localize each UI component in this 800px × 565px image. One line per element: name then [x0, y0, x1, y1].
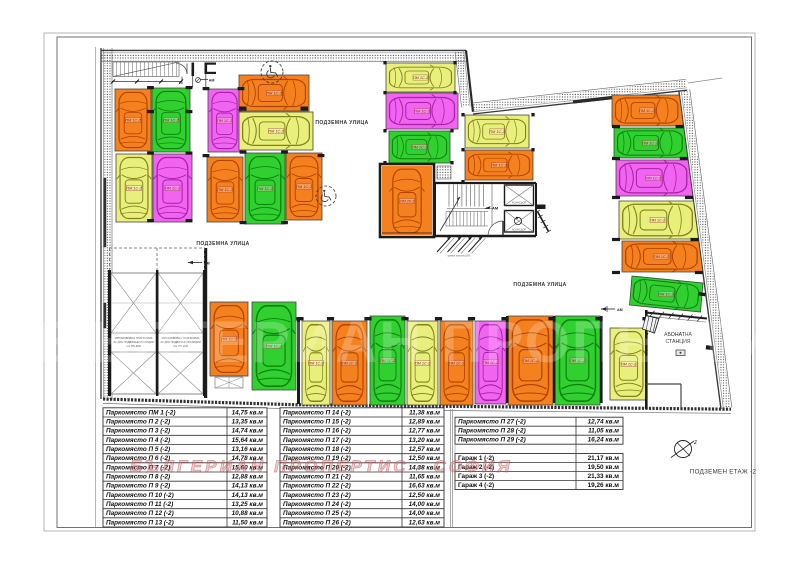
svg-text:ПМ 1C-2: ПМ 1C-2: [165, 187, 181, 191]
svg-text:ПОДЗЕМНА УЛИЦА: ПОДЗЕМНА УЛИЦА: [315, 120, 368, 126]
svg-text:12,50 кв.м: 12,50 кв.м: [409, 492, 441, 499]
svg-text:21,33 кв.м: 21,33 кв.м: [588, 473, 620, 480]
svg-text:Паркомясто П 5 (-2): Паркомясто П 5 (-2): [106, 446, 170, 453]
svg-text:Паркомясто П 25 (-2): Паркомясто П 25 (-2): [283, 510, 351, 517]
svg-text:Паркомясто П 2 (-2): Паркомясто П 2 (-2): [106, 419, 170, 426]
svg-text:Паркомясто П 12 (-2): Паркомясто П 12 (-2): [106, 510, 174, 517]
svg-text:14,13 кв.м: 14,13 кв.м: [232, 492, 264, 499]
svg-text:АСАНСЬОР: АСАНСЬОР: [512, 201, 527, 205]
svg-text:13,25 кв.м: 13,25 кв.м: [232, 501, 264, 508]
svg-text:14,75 кв.м: 14,75 кв.м: [232, 409, 264, 416]
svg-text:19,26 кв.м: 19,26 кв.м: [588, 482, 620, 489]
svg-text:ПМ 26-2: ПМ 26-2: [400, 200, 415, 204]
svg-text:ПМ 1C-2: ПМ 1C-2: [642, 142, 658, 146]
svg-text:ПМ 1C-2: ПМ 1C-2: [217, 119, 233, 123]
svg-text:Паркомясто П 10 (-2): Паркомясто П 10 (-2): [106, 492, 174, 499]
svg-text:Паркомясто ПМ 1 (-2): Паркомясто ПМ 1 (-2): [106, 409, 175, 416]
svg-text:ПМ 1C-2: ПМ 1C-2: [491, 164, 507, 168]
svg-text:ПМ 1C-2: ПМ 1C-2: [646, 177, 662, 181]
svg-text:z: z: [693, 440, 697, 446]
svg-text:ПМ 1C-2: ПМ 1C-2: [413, 76, 429, 80]
svg-text:АСАНСЬОР: АСАНСЬОР: [512, 227, 527, 231]
svg-text:ПМ 1C-2: ПМ 1C-2: [266, 92, 282, 96]
svg-text:Паркомясто П 16 (-2): Паркомясто П 16 (-2): [283, 428, 351, 435]
svg-text:Паркомясто П 23 (-2): Паркомясто П 23 (-2): [283, 492, 351, 499]
svg-text:14,74 кв.м: 14,74 кв.м: [232, 428, 264, 435]
svg-text:13,20 кв.м: 13,20 кв.м: [409, 437, 441, 444]
svg-text:14,13 кв.м: 14,13 кв.м: [232, 483, 264, 490]
svg-text:12,89 кв.м: 12,89 кв.м: [409, 419, 441, 426]
svg-text:21,17 кв.м: 21,17 кв.м: [588, 455, 620, 462]
svg-text:14,00 кв.м: 14,00 кв.м: [409, 501, 441, 508]
svg-text:15,64 кв.м: 15,64 кв.м: [232, 437, 264, 444]
svg-text:ПОДЗЕМНА УЛИЦА: ПОДЗЕМНА УЛИЦА: [513, 282, 566, 288]
svg-text:БЪЛГЕРИАН ПРОПЕРТИС: БЪЛГЕРИАН ПРОПЕРТИС: [39, 310, 800, 375]
svg-text:Паркомясто П 11 (-2): Паркомясто П 11 (-2): [106, 501, 173, 508]
svg-text:Паркомясто П 26 (-2): Паркомясто П 26 (-2): [283, 519, 351, 526]
svg-text:ПМ 1C-2: ПМ 1C-2: [650, 219, 666, 223]
svg-text:Паркомясто П 24 (-2): Паркомясто П 24 (-2): [283, 501, 351, 508]
svg-text:ПМ 1C-2: ПМ 1C-2: [654, 255, 670, 259]
svg-text:16,63 кв.м: 16,63 кв.м: [409, 483, 441, 490]
svg-text:Паркомясто П 9 (-2): Паркомясто П 9 (-2): [106, 483, 170, 490]
svg-text:Паркомясто П 29 (-2): Паркомясто П 29 (-2): [458, 437, 526, 444]
svg-text:Гараж 4 (-2): Гараж 4 (-2): [458, 482, 494, 489]
svg-text:14,00 кв.м: 14,00 кв.м: [409, 510, 441, 517]
svg-text:AM: AM: [204, 262, 210, 266]
svg-text:12,63 кв.м: 12,63 кв.м: [409, 519, 441, 526]
svg-text:16,24 кв.м: 16,24 кв.м: [588, 437, 620, 444]
svg-text:Паркомясто П 18 (-2): Паркомясто П 18 (-2): [283, 446, 351, 453]
svg-text:13,35 кв.м: 13,35 кв.м: [232, 419, 264, 426]
svg-text:БЪЛГЕРИАН ПРОПЕРТИС - СОФИЯ: БЪЛГЕРИАН ПРОПЕРТИС - СОФИЯ: [130, 457, 513, 476]
svg-text:ПМ 1C-2: ПМ 1C-2: [296, 185, 312, 189]
svg-text:1B: 1B: [179, 81, 183, 85]
svg-text:Паркомясто П 15 (-2): Паркомясто П 15 (-2): [283, 419, 351, 426]
svg-text:10,88 кв.м: 10,88 кв.м: [232, 510, 264, 517]
svg-text:Паркомясто П 28 (-2): Паркомясто П 28 (-2): [458, 428, 526, 435]
svg-text:ПМ 1C-2: ПМ 1C-2: [217, 188, 233, 192]
svg-text:ПМ 1C-2: ПМ 1C-2: [658, 293, 674, 297]
svg-text:11,05 кв.м: 11,05 кв.м: [588, 428, 619, 435]
svg-text:ПМ 1C-2: ПМ 1C-2: [412, 146, 428, 150]
svg-text:ПМ 1C-2: ПМ 1C-2: [489, 130, 505, 134]
svg-text:Паркомясто П 22 (-2): Паркомясто П 22 (-2): [283, 483, 351, 490]
svg-text:ПОДЗЕМНА УЛИЦА: ПОДЗЕМНА УЛИЦА: [196, 241, 249, 247]
svg-text:12,77 кв.м: 12,77 кв.м: [409, 428, 441, 435]
svg-text:ПМ 1C-2: ПМ 1C-2: [268, 130, 284, 134]
svg-text:19,50 кв.м: 19,50 кв.м: [588, 464, 620, 471]
svg-text:11,50 кв.м: 11,50 кв.м: [232, 519, 263, 526]
svg-text:Паркомясто П 17 (-2): Паркомясто П 17 (-2): [283, 437, 351, 444]
svg-text:ПМ 1C-2: ПМ 1C-2: [126, 187, 142, 191]
svg-text:ПМ 1C-2: ПМ 1C-2: [163, 119, 179, 123]
svg-text:ПМ 1C-2: ПМ 1C-2: [414, 110, 430, 114]
svg-text:рампа наклон 18%: рампа наклон 18%: [448, 254, 471, 258]
svg-text:11,38 кв.м: 11,38 кв.м: [409, 409, 440, 416]
svg-text:12,74 кв.м: 12,74 кв.м: [588, 419, 620, 426]
svg-text:ПОДЗЕМЕН ЕТАЖ -2: ПОДЗЕМЕН ЕТАЖ -2: [690, 469, 756, 476]
svg-text:ПМ 1C-2: ПМ 1C-2: [125, 119, 141, 123]
svg-text:ПМ 1C-2: ПМ 1C-2: [639, 109, 655, 113]
svg-text:AM: AM: [209, 79, 215, 83]
svg-text:Паркомясто П 4 (-2): Паркомясто П 4 (-2): [106, 437, 170, 444]
svg-text:Паркомясто П 27 (-2): Паркомясто П 27 (-2): [458, 419, 526, 426]
svg-text:Паркомясто П 13 (-2): Паркомясто П 13 (-2): [106, 519, 174, 526]
svg-text:AM: AM: [492, 206, 499, 211]
svg-text:Паркомясто П 14 (-2): Паркомясто П 14 (-2): [283, 409, 351, 416]
svg-text:12,57 кв.м: 12,57 кв.м: [409, 446, 441, 453]
svg-text:13,16 кв.м: 13,16 кв.м: [232, 446, 264, 453]
svg-text:ПМ 1C-2: ПМ 1C-2: [257, 187, 273, 191]
svg-text:Паркомясто П 3 (-2): Паркомясто П 3 (-2): [106, 428, 170, 435]
